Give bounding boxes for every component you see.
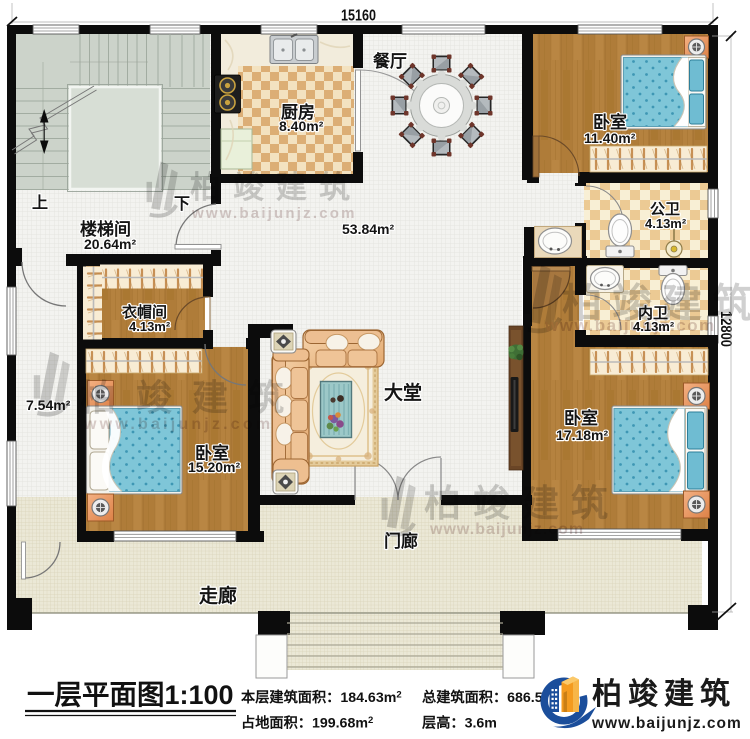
svg-text:餐厅: 餐厅 — [373, 51, 407, 71]
svg-text:卧室: 卧室 — [593, 112, 627, 132]
svg-text:www.baijunjz.com: www.baijunjz.com — [591, 715, 742, 732]
svg-text:下: 下 — [174, 196, 190, 213]
svg-text:总建筑面积：686.50: 总建筑面积：686.50 — [422, 689, 551, 706]
svg-text:53.84m²: 53.84m² — [342, 221, 394, 237]
svg-text:上: 上 — [32, 194, 48, 212]
svg-text:柏竣建筑: 柏竣建筑 — [424, 482, 620, 524]
svg-text:4.13m²: 4.13m² — [645, 216, 687, 231]
svg-text:4.13m²: 4.13m² — [129, 319, 171, 334]
svg-text:占地面积：199.68m2: 占地面积：199.68m2 — [241, 715, 373, 732]
svg-text:层高：3.6m: 层高：3.6m — [422, 715, 497, 732]
svg-text:柏竣建筑: 柏竣建筑 — [80, 377, 304, 418]
svg-text:一层平面图1:100: 一层平面图1:100 — [27, 679, 234, 710]
svg-text:www.baijunjz.com: www.baijunjz.com — [191, 205, 357, 222]
svg-text:www.baijunjz.com: www.baijunjz.com — [429, 521, 584, 538]
svg-text:11.40m²: 11.40m² — [584, 130, 636, 146]
svg-text:柏竣建筑: 柏竣建筑 — [190, 170, 362, 205]
svg-text:卧室: 卧室 — [564, 408, 598, 428]
svg-text:大堂: 大堂 — [384, 381, 422, 404]
svg-text:17.18m²: 17.18m² — [556, 427, 608, 443]
svg-text:15.20m²: 15.20m² — [188, 459, 240, 475]
svg-text:走廊: 走廊 — [199, 584, 237, 607]
svg-text:本层建筑面积：184.63m2: 本层建筑面积：184.63m2 — [241, 689, 402, 706]
svg-text:8.40m²: 8.40m² — [279, 118, 324, 134]
svg-text:柏竣建筑: 柏竣建筑 — [592, 677, 736, 711]
svg-text:www.baijunjz.com: www.baijunjz.com — [544, 316, 716, 335]
svg-text:20.64m²: 20.64m² — [84, 236, 136, 252]
svg-text:www.baijunjz.com: www.baijunjz.com — [83, 416, 273, 433]
